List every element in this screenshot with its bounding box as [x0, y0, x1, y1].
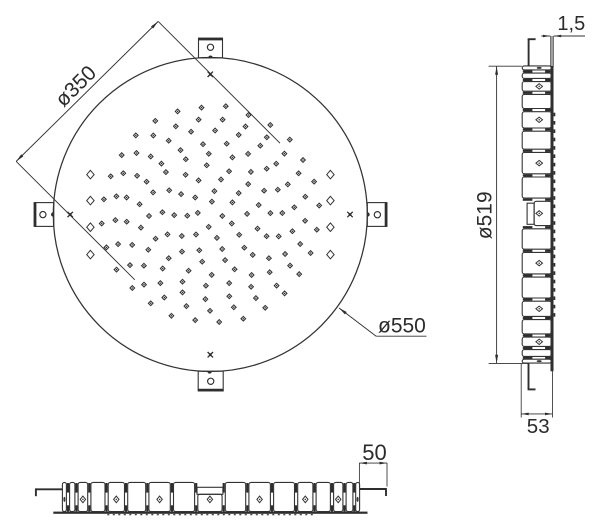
- svg-text:ø519: ø519: [473, 191, 496, 239]
- svg-text:50: 50: [362, 440, 386, 465]
- svg-text:53: 53: [527, 415, 550, 438]
- svg-text:ø550: ø550: [378, 315, 426, 338]
- svg-text:1,5: 1,5: [557, 13, 585, 35]
